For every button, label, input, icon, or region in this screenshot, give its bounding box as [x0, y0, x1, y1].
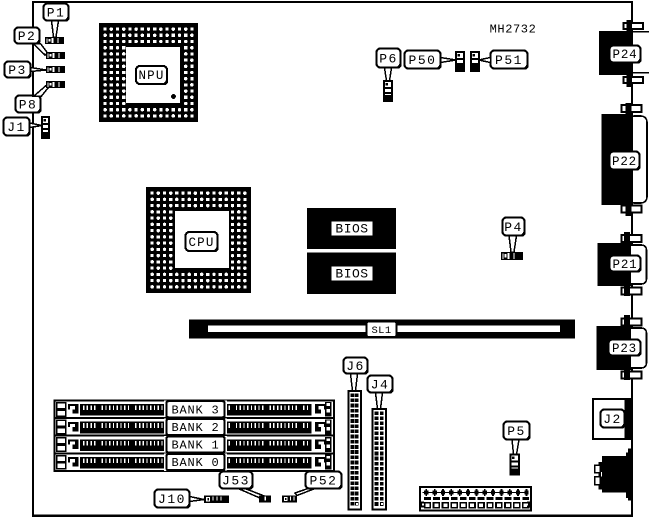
svg-text:BIOS: BIOS	[335, 222, 368, 237]
svg-text:SL1: SL1	[371, 325, 391, 337]
svg-text:P6: P6	[379, 51, 398, 66]
svg-text:P22: P22	[612, 155, 637, 169]
svg-text:BANK 0: BANK 0	[171, 456, 219, 470]
svg-text:P51: P51	[495, 53, 523, 68]
svg-text:BANK 3: BANK 3	[171, 403, 219, 417]
svg-text:BANK 1: BANK 1	[171, 439, 219, 453]
svg-text:J6: J6	[346, 359, 365, 374]
svg-text:P5: P5	[507, 424, 526, 439]
svg-text:J10: J10	[158, 492, 186, 507]
svg-text:P4: P4	[504, 220, 523, 235]
svg-text:MH2732: MH2732	[490, 23, 537, 37]
svg-text:P50: P50	[409, 53, 437, 68]
svg-text:P3: P3	[8, 63, 27, 78]
svg-text:BIOS: BIOS	[335, 267, 368, 282]
svg-text:J1: J1	[7, 120, 26, 135]
svg-text:J2: J2	[603, 412, 622, 427]
svg-text:P1: P1	[47, 5, 66, 20]
svg-text:NPU: NPU	[138, 69, 164, 83]
svg-text:P8: P8	[19, 97, 38, 112]
svg-text:P23: P23	[612, 342, 637, 356]
svg-text:BANK 2: BANK 2	[171, 421, 219, 435]
svg-text:P52: P52	[310, 473, 338, 488]
svg-text:CPU: CPU	[188, 236, 214, 250]
svg-text:P24: P24	[613, 48, 638, 62]
svg-text:P2: P2	[18, 29, 37, 44]
svg-text:J53: J53	[222, 473, 250, 488]
svg-text:P21: P21	[613, 258, 638, 272]
svg-text:J4: J4	[371, 377, 390, 392]
